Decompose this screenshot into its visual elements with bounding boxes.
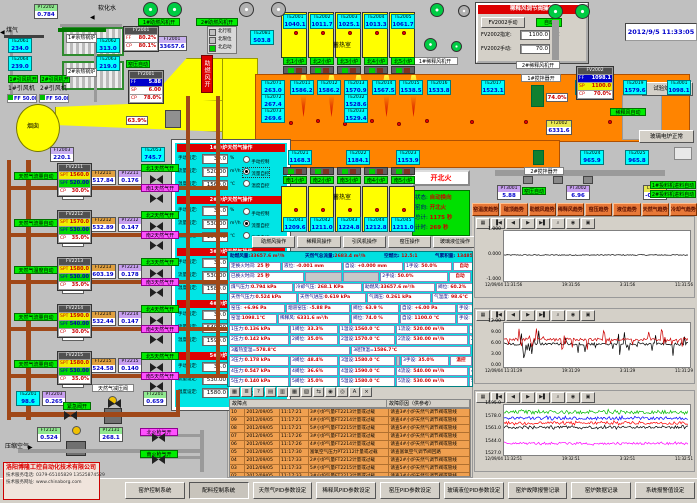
reversal-status-panel: 状态: 自动换向窑向: 开北火总计: 1175 秒计时: 269 秒	[412, 190, 470, 236]
tag-value: 98.6	[17, 398, 39, 406]
pipe	[552, 20, 559, 60]
alarm-row[interactable]: 082012/09/0511:17:215#小炉气量FT2215计量或过载请查5…	[230, 425, 470, 433]
tag-value: 0.147	[119, 224, 141, 232]
led-北5天然气开: 北5天然气开	[141, 352, 179, 360]
gas-input[interactable]: 35.0	[202, 362, 228, 372]
chart-1: ▦▐◀◀▶▶▌⌕◉▣12.009.006.003.000.0012/09/04 …	[474, 308, 695, 384]
alarm-dot	[608, 120, 612, 124]
led-窑压自动: 窑压自动	[522, 187, 546, 195]
zoom-icon[interactable]: ⌕	[551, 392, 565, 403]
tag-TE2021: TE20211168.3	[288, 150, 312, 165]
save-icon[interactable]: ▣	[581, 392, 595, 403]
last-icon[interactable]: ▶▌	[536, 218, 550, 229]
tag-value: 1025.1	[338, 21, 360, 29]
tag-TE2012: TE20121586.2	[317, 80, 341, 95]
tag-value: 313.0	[97, 45, 119, 53]
pane-grid-icon[interactable]: ▦	[289, 387, 300, 397]
next-icon[interactable]: ▶	[521, 392, 535, 403]
data-cell: 1手设: 50.0%	[404, 262, 452, 272]
tag-TE2053: TE2053745.7	[141, 147, 165, 162]
data-cell: 手设: 70.0%	[457, 314, 473, 324]
tag-value: 0.659	[144, 398, 166, 406]
valve-position-box: 74.0%	[546, 93, 568, 102]
trend-button-8[interactable]: 冷却气趋势	[670, 203, 697, 216]
pane-split-icon[interactable]: ▧	[301, 387, 312, 397]
io-box	[674, 147, 692, 160]
operation-button-2[interactable]: 稀释风操作	[297, 236, 340, 248]
last-icon[interactable]: ▶▌	[536, 392, 550, 403]
x-tick: 19:31:29	[562, 368, 580, 373]
operation-button-4[interactable]: 窑压操作	[388, 236, 431, 248]
data-cell: 自动	[449, 272, 471, 282]
aux-air-open-label: 助燃风开	[201, 55, 213, 93]
trend-button-6[interactable]: 液位趋势	[613, 203, 640, 216]
y-tick: 0.000	[475, 252, 501, 257]
tag-value: 1184.1	[347, 157, 369, 165]
operation-button-1[interactable]: 助燃风操作	[252, 236, 295, 248]
pane-cols-icon[interactable]: ▥	[277, 387, 288, 397]
data-cell: 3温设:1580.0 ℃	[339, 356, 395, 366]
data-cell: 窑温:1098.1℃	[229, 314, 277, 324]
system-button-6[interactable]: 玻璃液位PID参数设定	[444, 482, 504, 499]
alarm-row[interactable]: 052012/09/0511:17:30富氧空气压力PT2112计量或过载请查富…	[230, 449, 470, 457]
data-cell: 液位: -0.001 mm	[282, 262, 342, 272]
tag-value: 220.1	[51, 154, 73, 162]
company-web[interactable]: 技术服务网址: www.chinaborg.com	[6, 479, 97, 486]
system-button-3[interactable]: 天然气PID参数设定	[253, 482, 313, 499]
tag-TE2033: TE20331529.4	[344, 108, 368, 123]
radio-温度自控[interactable]: 温度自控	[243, 180, 269, 189]
data-cell: 自设: 1100.0 ℃	[400, 314, 456, 324]
tag-TE2004: TE20041013.3	[364, 14, 388, 29]
tag-TE2024: TE2024965.9	[580, 150, 604, 165]
led-天然气流量自动: 天然气流量自动	[14, 360, 58, 368]
tag-TE2014: TE20141567.5	[372, 80, 396, 95]
dialog-title: 稀释风调节阀操作	[478, 5, 586, 14]
fv2002-sp-input[interactable]: 1100.0	[520, 30, 550, 40]
data-cell: 气调压: 0.261 kPa	[367, 293, 431, 303]
data-cell: 自设: +0.000 mm	[343, 262, 403, 272]
tag-PT2211: PT22110.176	[118, 170, 142, 185]
chart-0: ▦▐◀◀▶▶▌⌕◉▣1.0000.000-1.00012/09/04 11:31…	[474, 216, 695, 298]
zoom-icon[interactable]: ⌕	[551, 218, 565, 229]
label-2#引风机: 2#引风机	[40, 85, 67, 92]
valve-icon[interactable]	[150, 222, 163, 231]
tag-TE2201: TE220198.6	[16, 391, 40, 406]
cursor-icon[interactable]: ◉	[566, 218, 580, 229]
valve-icon[interactable]	[150, 335, 163, 344]
led-南4天然气开: 南4天然气开	[141, 325, 179, 333]
zoom-icon[interactable]: ⌕	[551, 310, 565, 321]
y-tick: 1.000	[475, 227, 501, 232]
led-2#稀释风机开: 2#稀释风机开	[516, 61, 560, 69]
led-南2天然气开: 南2天然气开	[141, 231, 179, 239]
pipe	[60, 24, 122, 27]
tag-value: 965.9	[581, 157, 603, 165]
pane-rows-icon[interactable]: ▤	[265, 387, 276, 397]
data-cell: 天然气进压:0.619 kPa	[298, 293, 366, 303]
data-cell: 5温设:1580.0 ℃	[339, 377, 395, 387]
system-button-8[interactable]: 窑炉数据记录	[571, 482, 631, 499]
tag-TE2042: TE20421211.0	[310, 217, 334, 232]
x-tick: 11:31:56	[675, 282, 693, 287]
y-tick: 1544.0	[475, 439, 501, 444]
tag-TE2045: TE20451211.0	[391, 217, 415, 232]
tag-TE3001: TE30011098.1	[667, 80, 691, 95]
trend-button-7[interactable]: 天然气趋势	[642, 203, 669, 216]
label-1#引风机: 1#引风机	[8, 85, 35, 92]
trend-button-4[interactable]: 稀释风趋势	[557, 203, 584, 216]
tag-value: 745.7	[142, 154, 164, 162]
tag-value: 1212.8	[365, 224, 387, 232]
data-cell	[343, 272, 380, 282]
tag-PT2131: PT2131268.1	[99, 427, 123, 442]
pipe	[495, 170, 665, 176]
burner-nozzle-1	[523, 176, 533, 184]
summary-icon[interactable]: ▦	[229, 387, 240, 397]
alarm-row[interactable]: 032012/09/0511:17:335#小炉气量FT2215计量或过载请查5…	[230, 465, 470, 473]
pipe	[10, 233, 228, 237]
tag-TE2023: TE20231153.9	[396, 150, 420, 165]
radio-流量自控[interactable]: 流量自控	[243, 168, 269, 177]
tag-FT2212: FT2212532.89	[90, 217, 116, 232]
fan-icon	[548, 4, 563, 19]
tag-TE2003: TE20031025.1	[337, 14, 361, 29]
led-北5小炉: 北5小炉	[391, 57, 415, 65]
trend-button-5[interactable]: 窑压趋势	[585, 203, 612, 216]
trend-button-3[interactable]: 助燃风趋势	[529, 203, 556, 216]
valve-icon[interactable]	[150, 316, 163, 325]
label-烟囱: 烟囱	[27, 123, 39, 130]
operation-button-3[interactable]: 引风机操作	[343, 236, 386, 248]
data-cell: 窑压: +6.96 Pa	[229, 304, 285, 314]
label-▶: ▶	[28, 444, 33, 451]
prev-icon[interactable]: ◀	[506, 310, 520, 321]
controller-panel-FV2214: FV2214SPT1590.0SPF540.00CP30.0%	[57, 304, 92, 338]
tag-TE2081: TE2081503.8	[250, 30, 274, 45]
pipe	[10, 327, 228, 331]
fan-icon	[458, 5, 470, 17]
tag-value: 1168.3	[289, 157, 311, 165]
led-2#助燃风机开: 2#助燃风机开	[196, 18, 238, 26]
alarm-dot	[289, 121, 293, 125]
data-cell: 3压力:0.178 kPa	[229, 356, 289, 366]
x-tick: 11:32:51	[675, 456, 693, 461]
tag-TE2001: TE20011040.1	[283, 14, 307, 29]
data-cell: 4温设:1590.0 ℃	[339, 367, 395, 377]
company-phone: 技术服务电话: 0379-65105829 13525874529	[6, 472, 97, 479]
pipe	[8, 412, 178, 417]
tag-FT2214: FT2214532.44	[90, 311, 116, 326]
data-cell: 4手设: 30.0%	[469, 367, 473, 377]
save-icon[interactable]: ▣	[581, 310, 595, 321]
valve-icon[interactable]	[150, 269, 163, 278]
alarm-header[interactable]: 故障原因（供参考）	[387, 400, 470, 407]
fv2002-mv-label: FV2002手动:	[481, 46, 512, 53]
data-cell: 1温设:1560.0 ℃	[339, 325, 395, 335]
next-icon[interactable]: ▶	[521, 310, 535, 321]
valve-icon[interactable]	[150, 363, 163, 372]
pipe	[10, 186, 228, 190]
alarm-dot	[402, 31, 406, 35]
tag-TE2019: TE20191579.6	[623, 80, 647, 95]
data-cell: 3阀位: 48.4%	[290, 356, 338, 366]
data-cell: 2压力:0.142 kPa	[229, 335, 289, 345]
data-cell: 手设: 70.0%	[457, 304, 473, 314]
led-2#投料机进料自动: 2#投料机进料自动	[650, 190, 696, 198]
alarm-dot	[294, 31, 298, 35]
chart-plot	[503, 322, 691, 368]
alarm-dot	[397, 122, 401, 126]
led-北2天然气开: 北2天然气开	[141, 211, 179, 219]
prev-icon[interactable]: ◀	[506, 218, 520, 229]
trend-button-2[interactable]: 碹顶趋势	[500, 203, 527, 216]
x-tick: 12/09/04 11:31:56	[485, 282, 522, 287]
led-天然气减压阀: 天然气减压阀	[92, 384, 134, 392]
data-cell: 3手设: 35.0%	[401, 356, 449, 366]
radio-流量自控[interactable]: 流量自控	[243, 220, 269, 229]
alarm-dot	[425, 119, 429, 123]
x-tick: 19:32:51	[562, 456, 580, 461]
tag-PT2214: PT22140.147	[118, 311, 142, 326]
data-cell: 天然气总流量:2683.4 m³/h	[304, 253, 382, 261]
y-tick: 6.00	[475, 341, 501, 346]
alarm-row[interactable]: 072012/09/0511:17:263#小炉气量FT2213计量或过载请查3…	[230, 433, 470, 441]
port-valve-indicator	[391, 66, 415, 74]
tag-value: 1224.8	[338, 224, 360, 232]
data-cell: 冷却气压: 268.1 KPa	[294, 283, 362, 293]
data-cell: 1手设: 30.0%	[469, 325, 473, 335]
gas-input[interactable]: 530.00	[202, 219, 228, 229]
valve-icon[interactable]	[150, 175, 163, 184]
valve-icon[interactable]	[152, 455, 165, 464]
data-cell	[396, 356, 400, 366]
tag-FT2213: FT2213603.19	[90, 264, 116, 279]
alarm-dot	[348, 208, 352, 212]
led-北1天然气开: 北1天然气开	[141, 164, 179, 172]
operation-button-5[interactable]: 玻璃液位操作	[433, 236, 476, 248]
port-valve-indicator	[364, 167, 388, 175]
ack-icon[interactable]: A	[349, 387, 360, 397]
data-cell: 2手设: 35.0%	[469, 335, 473, 345]
tag-TE2011: TE20111586.2	[290, 80, 314, 95]
last-icon[interactable]: ▶▌	[536, 310, 550, 321]
tag-value: 603.19	[91, 271, 115, 279]
led-1#助燃风机开: 1#助燃风机开	[138, 18, 180, 26]
tag-value: 219.0	[97, 63, 119, 71]
alarm-row[interactable]: 092012/09/0511:17:214#小炉气量FT2214计量或过载请查4…	[230, 417, 470, 425]
tag-value: 1586.2	[291, 87, 313, 95]
system-button-7[interactable]: 窑炉故障报警记录	[508, 482, 568, 499]
gas-input[interactable]: 1590.0	[202, 336, 228, 346]
system-button-4[interactable]: 稀释风PID参数设定	[316, 482, 376, 499]
port-valve-indicator	[337, 66, 361, 74]
gas-input[interactable]: 30.0	[202, 154, 228, 164]
chart-2: ▦▐◀◀▶▶▌⌕◉▣1595.01578.01561.01544.01527.0…	[474, 390, 695, 472]
tag-value: 5.88	[498, 192, 520, 200]
alarm-dot	[470, 120, 474, 124]
radio-手动控制[interactable]: 手动控制	[243, 156, 269, 165]
valve-icon[interactable]	[150, 382, 163, 391]
tag-value: 1211.0	[311, 224, 333, 232]
chart-plot	[503, 230, 691, 282]
data-cell: 助燃风量:33657.6 m³/h	[229, 253, 303, 261]
prev-icon[interactable]: ◀	[506, 392, 520, 403]
tag-FT2001: FT200133657.6	[157, 36, 187, 51]
tag-PT3002: PT30026.96	[566, 185, 590, 200]
led-南1小炉: 南1小炉	[283, 176, 307, 184]
data-cell: 5流设: 530.00 m³/h	[396, 377, 468, 387]
pipe	[186, 96, 190, 378]
data-cell: 2流设: 530.00 m³/h	[396, 335, 468, 345]
controller-panel-FV2002: FV2002FF1098.1SP1100.0CP70.0%	[576, 66, 614, 100]
cursor-icon[interactable]: ◉	[566, 392, 580, 403]
data-cell: 定换火时间: 25 秒	[229, 262, 281, 272]
controller-panel-FV2211: FV2211SPT1560.0SPF520.00CP30.0%	[57, 163, 92, 197]
company-name: 洛阳博隆工控自动化技术有限公司	[6, 464, 97, 472]
gas-input[interactable]: 520.00	[202, 167, 228, 177]
tag-value: 965.8	[626, 157, 648, 165]
controller-panel-FV2215: FV2215SPT1580.0SPF530.00CP35.0%	[57, 351, 92, 385]
x-tick: 19:31:56	[562, 282, 580, 287]
alarm-dot	[321, 31, 325, 35]
data-cell: 自动	[453, 262, 473, 272]
company-info-box: 洛阳博隆工控自动化技术有限公司 技术服务电话: 0379-65105829 13…	[3, 462, 100, 500]
tag-value: 532.44	[91, 318, 115, 326]
port-valve-indicator	[283, 66, 307, 74]
next-icon[interactable]: ▶	[521, 218, 535, 229]
tag-value: 532.89	[91, 224, 115, 232]
tag-value: 1098.1	[668, 87, 690, 95]
tag-PT2215: PT22150.140	[118, 358, 142, 373]
alarm-row[interactable]: 042012/09/0511:17:332#小炉气量FT2212计量或过载请查2…	[230, 457, 470, 465]
save-icon[interactable]: ▣	[581, 218, 595, 229]
tag-value: 517.84	[91, 177, 115, 185]
pipe	[7, 160, 11, 420]
record-icon[interactable]: ◉	[325, 387, 336, 397]
gas-input[interactable]: 30.0	[202, 310, 228, 320]
tag-value: 234.0	[9, 45, 31, 53]
valve-icon[interactable]	[108, 399, 121, 408]
help-icon[interactable]: ?	[253, 387, 264, 397]
tag-TE2022: TE20221184.1	[346, 150, 370, 165]
pipe	[58, 28, 106, 32]
data-cell: 4压力:0.547 kPa	[229, 367, 289, 377]
led-南5天然气开: 南5天然气开	[141, 372, 179, 380]
led-窑压自动: 窑压自动	[126, 60, 150, 68]
tag-PT2212: PT22120.147	[118, 217, 142, 232]
list-icon[interactable]: ≣	[241, 387, 252, 397]
system-button-9[interactable]: 系统报警值设定	[635, 482, 695, 499]
y-tick: 1595.0	[475, 401, 501, 406]
led-北3天然气开: 北3天然气开	[141, 258, 179, 266]
led-紧急阀开: 紧急阀开	[63, 402, 91, 410]
tag-value: 1579.6	[624, 87, 646, 95]
trend-button-1[interactable]: 窑温度趋势	[472, 203, 499, 216]
led-南2小炉: 南2小炉	[310, 176, 334, 184]
alarm-dot	[370, 119, 374, 123]
valve-icon[interactable]	[150, 194, 163, 203]
data-cell: 4阀位: 36.6%	[290, 367, 338, 377]
tag-FT2121: FT21210.524	[37, 427, 61, 442]
alarm-header[interactable]: 故障点	[230, 400, 387, 407]
led-北2小炉: 北2小炉	[310, 57, 334, 65]
tag-value: 0.147	[119, 318, 141, 326]
delete-icon[interactable]: ×	[361, 387, 372, 397]
led-北3小炉: 北3小炉	[337, 57, 361, 65]
fan-icon	[575, 4, 590, 19]
chart-toolbar: ▦▐◀◀▶▶▌⌕◉▣	[475, 217, 694, 230]
fv2002-mv-input[interactable]: 70.0	[520, 44, 550, 54]
fan-icon	[167, 2, 182, 17]
valve-icon[interactable]	[152, 433, 165, 442]
x-tick: 11:31:29	[675, 368, 693, 373]
tag-value: 1211.0	[392, 224, 414, 232]
tag-value: 269.6	[262, 115, 284, 123]
gas-input[interactable]: 35.0	[202, 258, 228, 268]
tag-TE2017: TE20171523.1	[481, 80, 505, 95]
system-button-5[interactable]: 窑压PID参数设定	[380, 482, 440, 499]
alarm-row[interactable]: 022012/09/0511:17:333#小炉气量FT2213计量或过载请查3…	[230, 473, 470, 477]
radio-手动控制[interactable]: 手动控制	[243, 208, 269, 217]
cursor-icon[interactable]: ◉	[566, 310, 580, 321]
y-tick: 3.00	[475, 352, 501, 357]
valve-icon[interactable]	[150, 241, 163, 250]
pipe	[26, 160, 31, 420]
led-天然气流量自动: 天然气流量自动	[14, 219, 58, 227]
gas-input[interactable]: 1580.0	[202, 284, 228, 294]
y-tick: 9.00	[475, 330, 501, 335]
valve-wheel-2	[72, 426, 81, 435]
fv2002-manual-button[interactable]: FV2002手动	[481, 17, 525, 28]
valve-icon[interactable]	[64, 411, 77, 420]
led-北1小炉: 北1小炉	[283, 57, 307, 65]
tag-value: 1533.8	[428, 87, 450, 95]
bottom-button-row: 窑炉控制系统配料控制系统天然气PID参数设定稀释风PID参数设定窑压PID参数设…	[125, 482, 695, 499]
fan-icon	[239, 2, 254, 17]
system-button-2[interactable]: 配料控制系统	[189, 482, 249, 499]
system-button-1[interactable]: 窑炉控制系统	[125, 482, 185, 499]
glass-furnace-status-button[interactable]: 玻璃电炉正常	[639, 130, 694, 143]
alarm-table: 102012/09/0511:17:213#小炉气量FT2213计量或过载请查3…	[229, 408, 471, 477]
tag-value: 6.96	[567, 192, 589, 200]
alarm-row[interactable]: 062012/09/0511:17:264#小炉气量FT2214计量或过载请查4…	[230, 441, 470, 449]
tag-value: 1523.1	[482, 87, 504, 95]
alarm-row[interactable]: 102012/09/0511:17:213#小炉气量FT2213计量或过载请查3…	[230, 409, 470, 417]
pipe	[176, 390, 180, 417]
swap-icon[interactable]: ⇆	[313, 387, 324, 397]
tag-TE2044: TE20441212.8	[364, 217, 388, 232]
alarm-dot	[375, 31, 379, 35]
led-天然气温度自动: 天然气温度自动	[14, 266, 58, 274]
led-1#搅拌器开: 1#搅拌器开	[521, 74, 561, 82]
tag-FT2201: FT22010.659	[143, 391, 167, 406]
tag-TE2071: TE2071263.0	[261, 80, 285, 95]
label-压缩空气: 压缩空气	[5, 443, 29, 450]
alarm-dot	[375, 208, 379, 212]
tag-TE2015: TE20151538.5	[399, 80, 423, 95]
label-1#余热锅炉: 1#余热锅炉	[66, 34, 97, 43]
silence-icon[interactable]: ◎	[337, 387, 348, 397]
damper-box	[165, 110, 181, 128]
gas-input[interactable]: 35.0	[202, 206, 228, 216]
y-tick: 1578.0	[475, 414, 501, 419]
gas-input[interactable]: 1580.0	[202, 388, 228, 398]
tag-value: 1061.7	[392, 21, 414, 29]
valve-icon[interactable]	[150, 288, 163, 297]
led-南3小炉: 南3小炉	[337, 176, 361, 184]
data-cell: 1阀位: 33.3%	[290, 325, 338, 335]
